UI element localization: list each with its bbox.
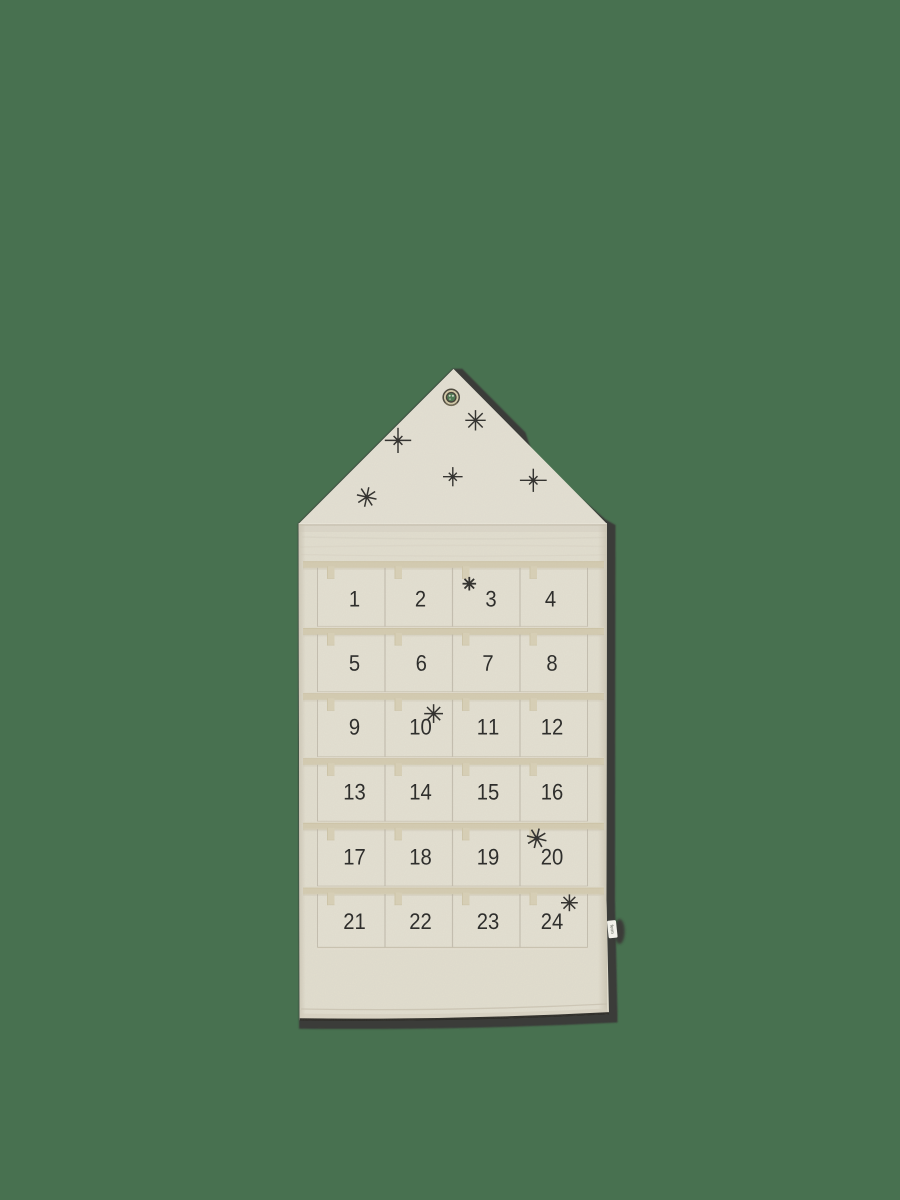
svg-text:ferm: ferm bbox=[609, 924, 615, 934]
